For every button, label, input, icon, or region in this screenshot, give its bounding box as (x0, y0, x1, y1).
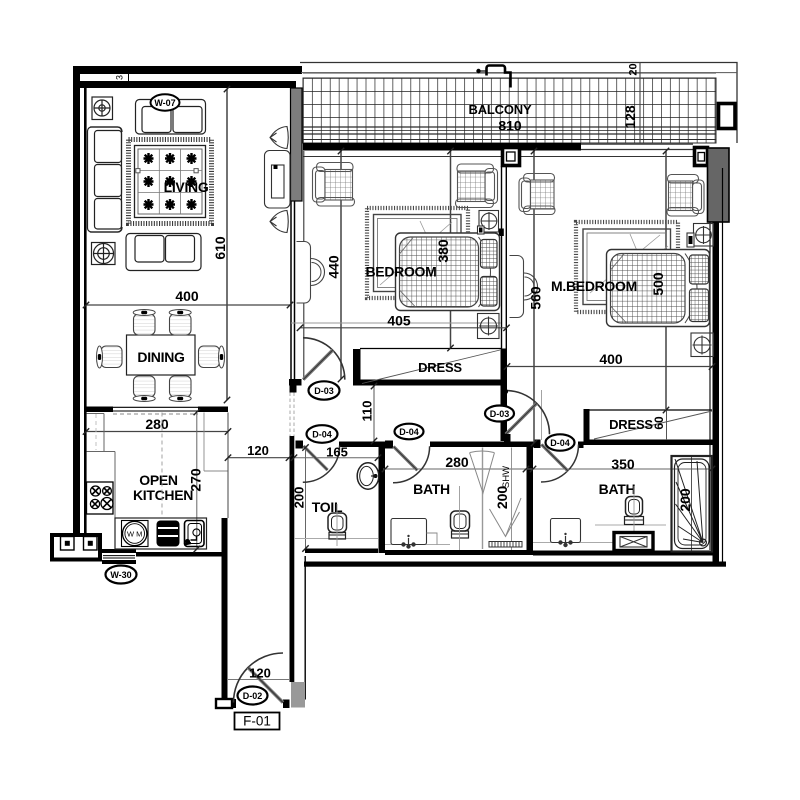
svg-text:270: 270 (188, 468, 204, 492)
svg-text:110: 110 (360, 401, 375, 422)
svg-text:810: 810 (498, 118, 522, 134)
svg-text:W M: W M (127, 530, 142, 539)
svg-text:400: 400 (599, 351, 623, 367)
svg-text:405: 405 (387, 313, 411, 329)
svg-text:380: 380 (435, 239, 451, 263)
svg-text:DRESS: DRESS (418, 360, 462, 375)
svg-text:DRESS: DRESS (609, 417, 653, 432)
svg-text:200: 200 (494, 486, 510, 510)
svg-text:60: 60 (652, 416, 666, 430)
svg-text:BATH: BATH (599, 481, 636, 497)
svg-text:M.BEDROOM: M.BEDROOM (551, 278, 637, 294)
svg-text:D-03: D-03 (314, 386, 334, 396)
svg-text:440: 440 (326, 255, 342, 279)
svg-text:120: 120 (247, 443, 269, 458)
svg-text:280: 280 (145, 416, 169, 432)
svg-text:400: 400 (175, 288, 199, 304)
svg-text:200: 200 (292, 487, 307, 509)
svg-text:120: 120 (249, 666, 271, 681)
svg-text:KITCHEN: KITCHEN (133, 487, 193, 503)
svg-text:OPEN: OPEN (139, 472, 178, 488)
svg-text:280: 280 (445, 454, 469, 470)
svg-text:BALCONY: BALCONY (469, 102, 532, 117)
svg-text:W-30: W-30 (110, 570, 131, 580)
svg-text:128: 128 (622, 105, 638, 129)
svg-text:20: 20 (628, 63, 640, 75)
svg-text:D-04: D-04 (550, 438, 570, 448)
svg-text:DINING: DINING (137, 349, 185, 365)
svg-text:D-04: D-04 (399, 427, 419, 437)
svg-text:350: 350 (611, 456, 635, 472)
svg-text:SHW: SHW (501, 466, 512, 488)
svg-text:200: 200 (677, 488, 693, 512)
svg-text:BEDROOM: BEDROOM (365, 264, 436, 280)
svg-text:F-01: F-01 (243, 714, 271, 729)
svg-text:500: 500 (650, 272, 666, 296)
svg-text:D-04: D-04 (312, 429, 332, 439)
svg-text:BATH: BATH (413, 481, 450, 497)
svg-text:560: 560 (528, 286, 544, 310)
svg-text:3: 3 (115, 75, 125, 80)
svg-text:D-03: D-03 (490, 409, 510, 419)
svg-text:D-02: D-02 (243, 691, 263, 701)
svg-text:LIVING: LIVING (164, 179, 209, 195)
svg-text:165: 165 (326, 445, 348, 460)
svg-text:610: 610 (212, 236, 228, 260)
svg-text:W-07: W-07 (154, 98, 175, 108)
